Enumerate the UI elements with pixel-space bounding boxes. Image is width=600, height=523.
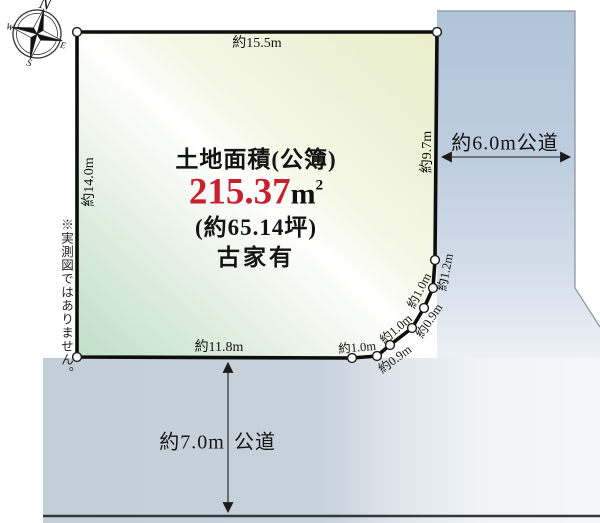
diagram-shapes: N W S E [0,0,600,523]
compass-rose: N W S E [0,0,78,77]
area-title: 土地面積(公簿) [175,140,336,174]
dim-bottom: 約11.8m [195,336,244,356]
road-bottom-type-label: 公道 [234,426,276,455]
area-tsubo: (約65.14坪) [195,208,317,242]
dim-right: 約9.7m [416,131,436,173]
building-note: 古家有 [217,238,295,272]
road-bottom-width-label: 約7.0m [159,426,225,455]
road-right-label: 約6.0m公道 [451,127,559,156]
compass-s-label: S [25,58,33,70]
area-unit-superscript: 2 [316,178,324,194]
land-plot-diagram: N W S E 約15.5m 約14.0m 約9.7m 約11.8m 約1.0m… [0,0,600,523]
dim-left: 約14.0m [78,157,98,206]
dim-chamfer-1: 約1.0m [337,335,376,357]
area-value: 215.37 [189,172,291,213]
area-unit: m [291,178,316,211]
dim-top: 約15.5m [232,32,281,52]
road-bottom-area [43,358,600,523]
disclaimer-note: ※実測図ではありません。 [57,218,76,380]
